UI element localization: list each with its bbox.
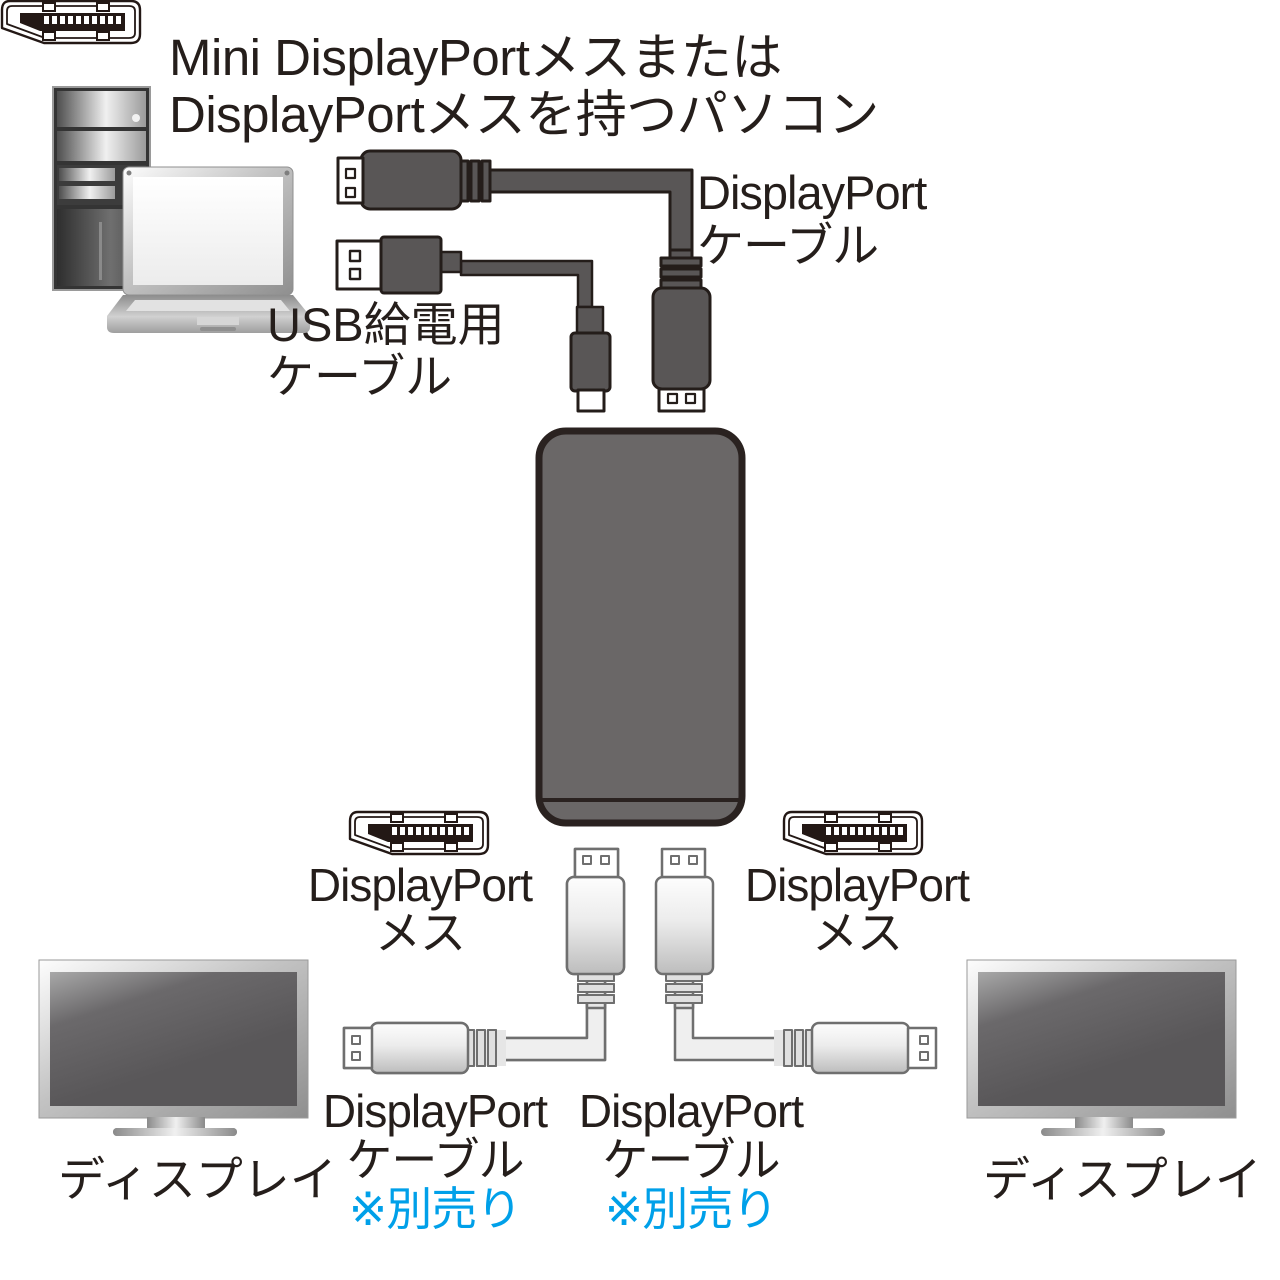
displayport-cable-bottom-right-label-line1: DisplayPort (560, 1087, 822, 1136)
displayport-female-right-label-line2: メス (722, 909, 992, 957)
sold-separately-note-left: ※別売り (304, 1185, 566, 1234)
displayport-cable-top-label: DisplayPort ケーブル (697, 166, 926, 272)
displayport-cable-top-label-line1: DisplayPort (697, 166, 926, 219)
pc-caption-line2: DisplayPortメスを持つパソコン (169, 86, 879, 143)
displayport-female-left-label-line1: DisplayPort (285, 861, 555, 909)
diagram-canvas: Mini DisplayPortメスまたは DisplayPortメスを持つパソ… (0, 0, 1280, 1280)
mst-hub-icon (539, 431, 742, 823)
usb-power-cable-label-line2: ケーブル (267, 351, 505, 403)
display-left-label: ディスプレイ (58, 1141, 312, 1210)
display-monitor-icon-right (967, 960, 1236, 1136)
usb-power-cable-label-line1: USB給電用 (267, 299, 505, 351)
displayport-female-left-label-line2: メス (285, 909, 555, 957)
displayport-female-right-label: DisplayPort メス (722, 861, 992, 957)
displayport-cable-bottom-right-label-line2: ケーブル (560, 1136, 822, 1185)
displayport-cable-bottom-left-label: DisplayPort ケーブル ※別売り (304, 1087, 566, 1234)
displayport-cable-bottom-right-label: DisplayPort ケーブル ※別売り (560, 1087, 822, 1234)
display-right-label: ディスプレイ (983, 1141, 1237, 1210)
display-monitor-icon-left (39, 960, 308, 1136)
displayport-female-port-icon-left (350, 812, 488, 854)
pc-caption-line1: Mini DisplayPortメスまたは (169, 29, 879, 86)
displayport-female-right-label-line1: DisplayPort (722, 861, 992, 909)
usb-power-cable-label: USB給電用 ケーブル (267, 299, 505, 403)
displayport-female-left-label: DisplayPort メス (285, 861, 555, 957)
pc-caption: Mini DisplayPortメスまたは DisplayPortメスを持つパソ… (169, 29, 879, 143)
displayport-cable-top-label-line2: ケーブル (697, 219, 926, 272)
displayport-cable-bottom-left-label-line1: DisplayPort (304, 1087, 566, 1136)
displayport-female-port-icon-right (784, 812, 922, 854)
sold-separately-note-right: ※別売り (560, 1185, 822, 1234)
displayport-cable-bottom-left-label-line2: ケーブル (304, 1136, 566, 1185)
